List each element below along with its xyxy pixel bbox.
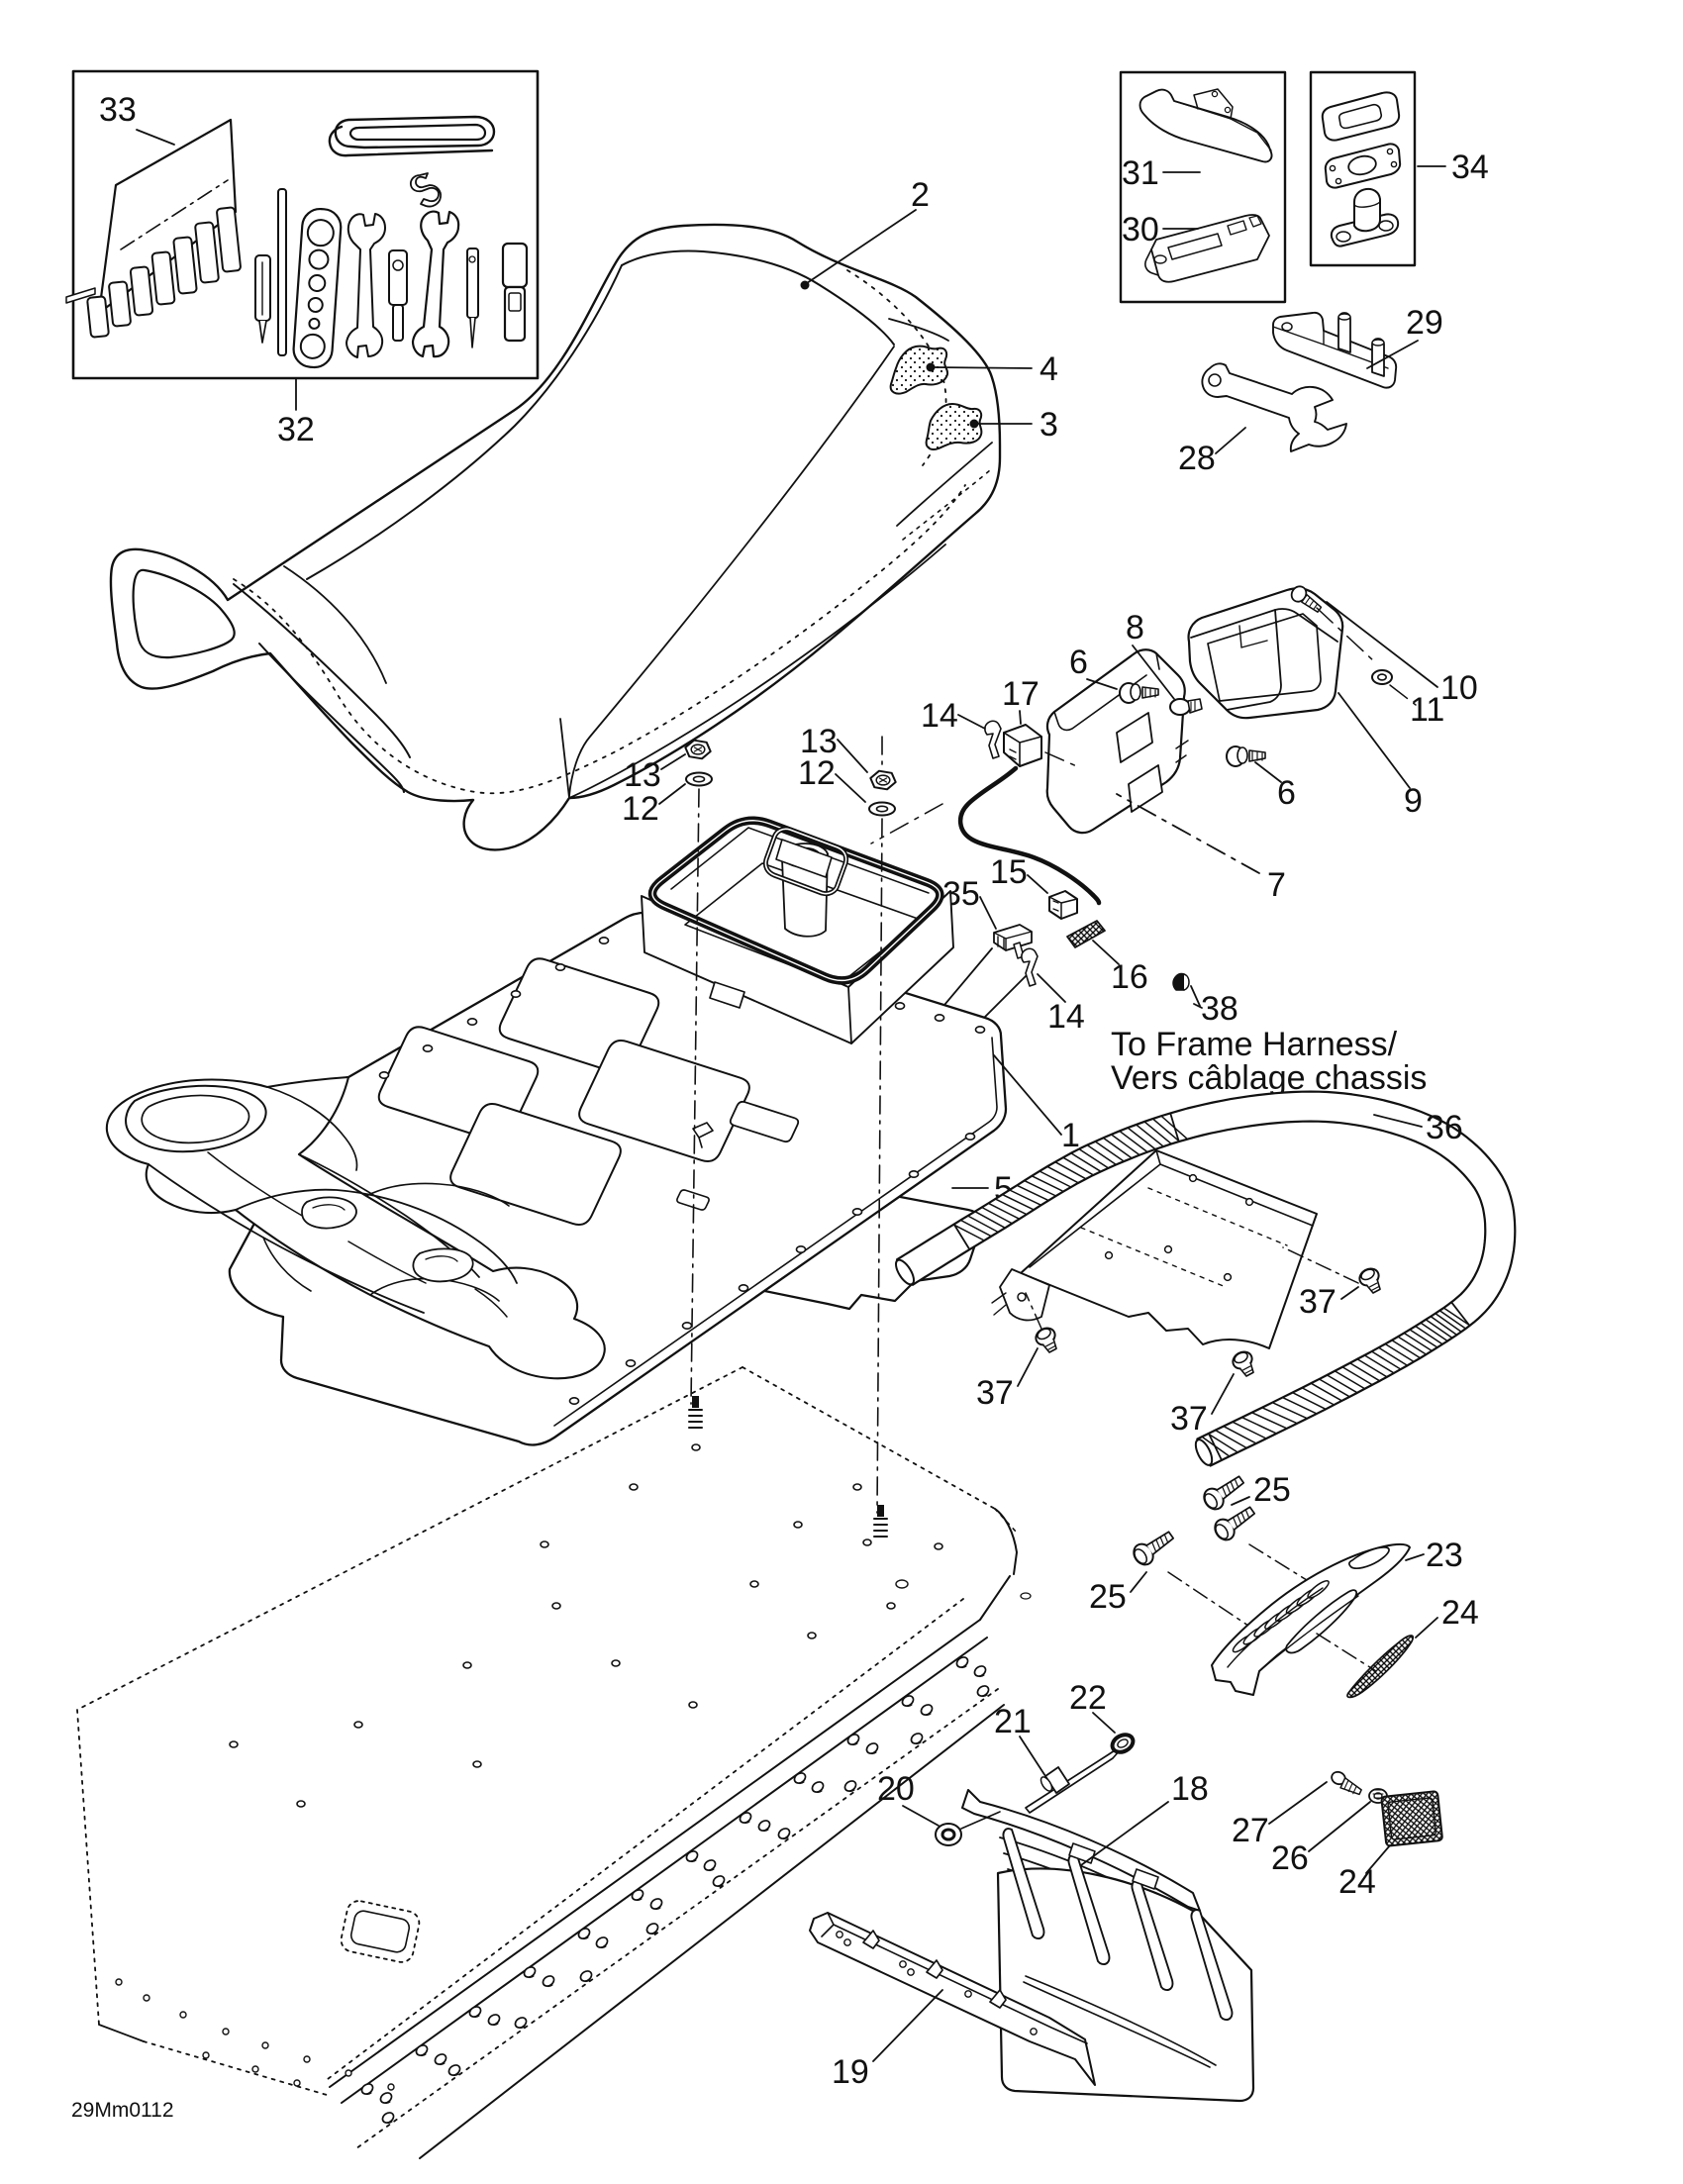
svg-text:10: 10 [1440, 669, 1478, 707]
svg-text:3: 3 [1039, 406, 1058, 444]
svg-text:Vers câblage chassis: Vers câblage chassis [1111, 1059, 1427, 1097]
svg-text:32: 32 [277, 411, 315, 448]
svg-text:16: 16 [1111, 958, 1148, 996]
svg-text:2: 2 [911, 176, 930, 214]
svg-text:31: 31 [1122, 154, 1159, 192]
svg-text:37: 37 [976, 1374, 1014, 1412]
svg-text:36: 36 [1426, 1109, 1463, 1146]
svg-text:37: 37 [1299, 1283, 1336, 1321]
svg-text:34: 34 [1451, 149, 1489, 186]
svg-text:12: 12 [798, 754, 836, 792]
svg-text:4: 4 [1039, 350, 1058, 388]
svg-text:26: 26 [1271, 1839, 1309, 1877]
svg-text:29Mm0112: 29Mm0112 [71, 2099, 174, 2122]
svg-text:13: 13 [624, 756, 661, 794]
svg-text:6: 6 [1069, 644, 1088, 681]
svg-text:25: 25 [1253, 1471, 1291, 1509]
svg-text:6: 6 [1277, 774, 1296, 812]
svg-text:11: 11 [1410, 691, 1444, 729]
svg-text:17: 17 [1002, 675, 1039, 713]
svg-text:29: 29 [1406, 304, 1443, 342]
svg-text:1: 1 [1061, 1117, 1080, 1154]
svg-text:27: 27 [1232, 1812, 1269, 1849]
svg-text:19: 19 [832, 2053, 869, 2091]
svg-text:22: 22 [1069, 1679, 1107, 1717]
svg-text:14: 14 [1047, 998, 1085, 1036]
svg-text:20: 20 [877, 1770, 915, 1808]
svg-text:12: 12 [622, 790, 659, 828]
svg-text:25: 25 [1089, 1578, 1127, 1616]
svg-text:38: 38 [1201, 990, 1238, 1028]
svg-text:7: 7 [1267, 866, 1286, 904]
svg-text:9: 9 [1404, 782, 1423, 820]
svg-text:14: 14 [921, 697, 958, 735]
svg-text:To Frame Harness/: To Frame Harness/ [1111, 1026, 1398, 1063]
svg-text:8: 8 [1126, 609, 1144, 646]
svg-text:18: 18 [1171, 1770, 1209, 1808]
svg-text:30: 30 [1122, 211, 1159, 248]
svg-text:33: 33 [99, 91, 137, 129]
svg-text:24: 24 [1441, 1594, 1479, 1632]
svg-text:28: 28 [1178, 440, 1216, 477]
svg-text:37: 37 [1170, 1400, 1208, 1438]
svg-text:23: 23 [1426, 1537, 1463, 1574]
svg-text:15: 15 [990, 853, 1028, 891]
svg-text:21: 21 [994, 1703, 1032, 1740]
